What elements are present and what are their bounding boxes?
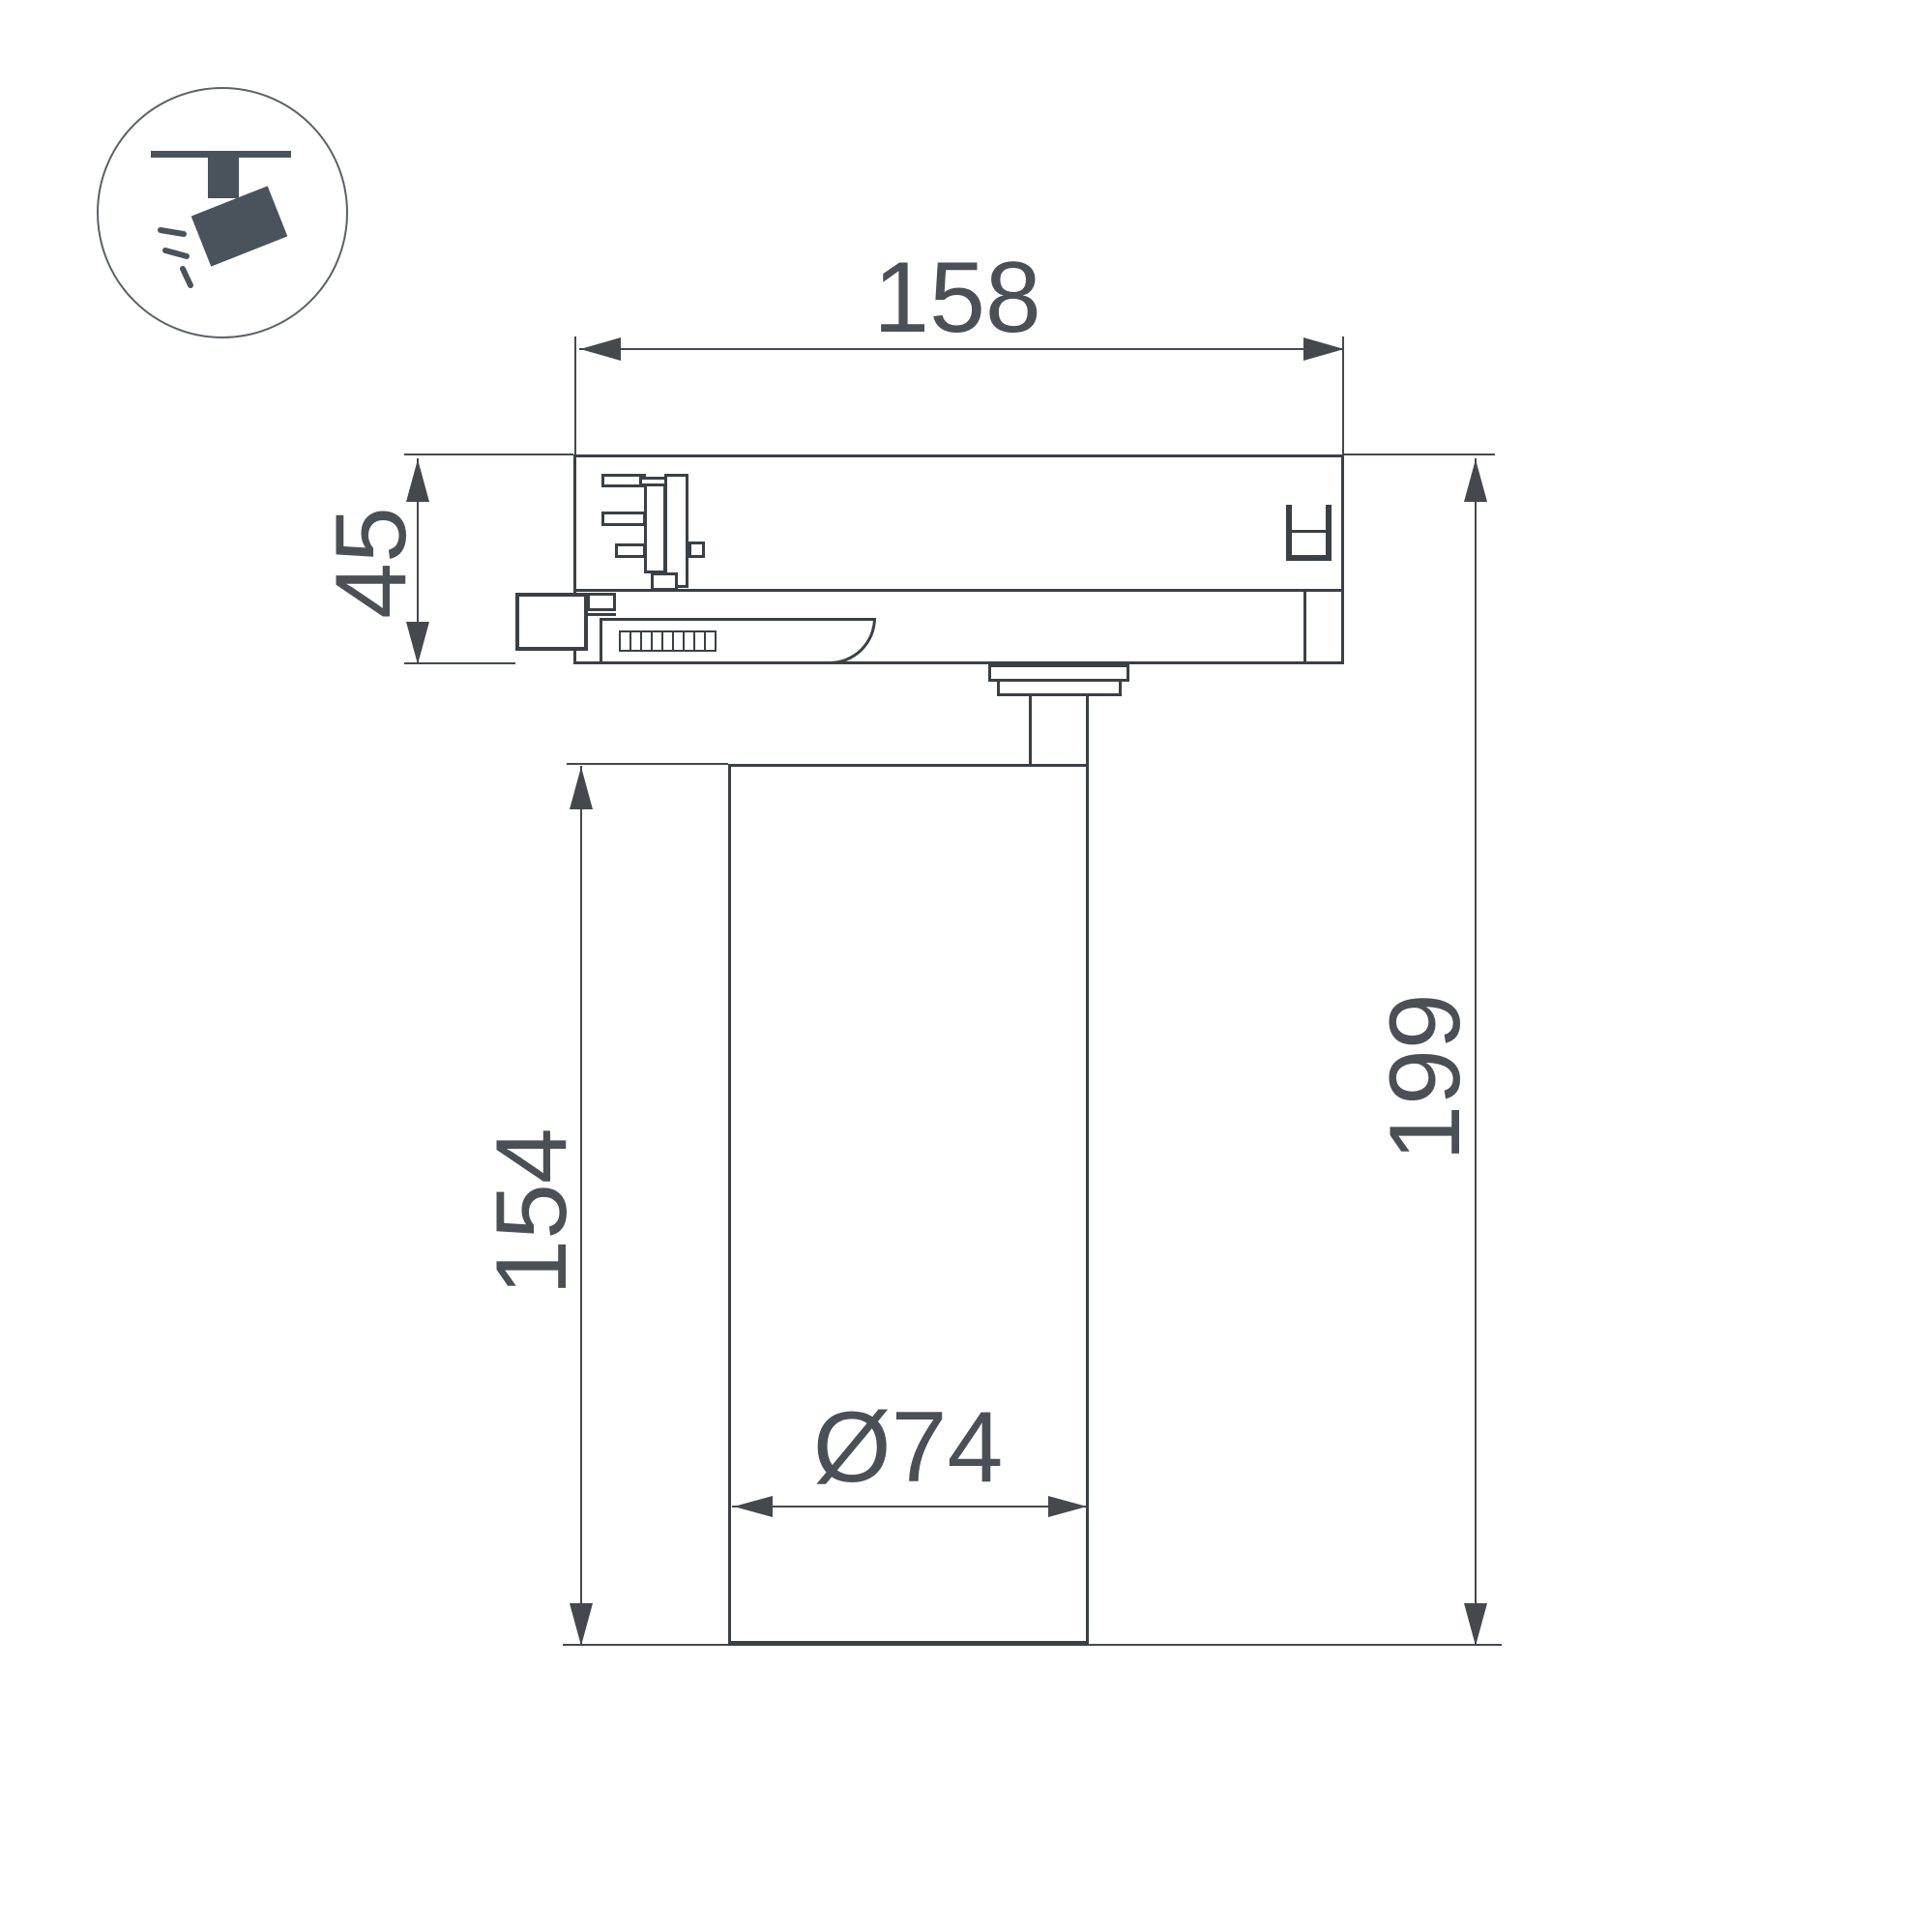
dim-74-label: Ø74 <box>763 1394 1053 1501</box>
dim-154-label: 154 <box>479 1067 585 1357</box>
connector-right-body <box>664 474 688 588</box>
connector-prong-middle <box>601 512 646 526</box>
mount-stem <box>1029 693 1089 767</box>
adapter-vent-grill <box>619 630 717 652</box>
adapter-latch-box <box>515 593 588 651</box>
adapter-lock-line <box>587 613 616 616</box>
dim-74-line <box>732 1506 1086 1508</box>
lamp-cylinder-body <box>728 764 1089 1646</box>
adapter-clip-inner-line <box>1291 530 1327 533</box>
dim-45-label: 45 <box>318 418 424 708</box>
icon-track-stem <box>208 153 239 198</box>
technical-drawing-canvas: 158 45 154 199 Ø74 <box>0 0 1932 1932</box>
adapter-lock-box <box>587 593 616 611</box>
dim-158-label: 158 <box>812 245 1102 351</box>
dim-45-ext-top <box>404 454 573 455</box>
dim-199-ext-top <box>1344 454 1495 455</box>
dim-154-arrow-down <box>570 1603 593 1649</box>
dim-158-arrow-right <box>1303 337 1347 361</box>
adapter-clip-u-shape <box>1286 505 1332 561</box>
vent-grill-stripes <box>621 632 715 650</box>
dim-154-arrow-up <box>570 764 593 809</box>
dim-199-label: 199 <box>1372 932 1478 1222</box>
adapter-main-body <box>573 454 1344 592</box>
dim-199-ext-bottom <box>1089 1644 1502 1646</box>
connector-right-tab <box>688 542 705 558</box>
adapter-strip-divider <box>1303 591 1306 662</box>
connector-prong-bottom <box>615 543 646 558</box>
dim-158-ext-left <box>574 337 576 454</box>
dim-199-arrow-up <box>1464 456 1487 502</box>
track-spotlight-icon <box>96 86 349 339</box>
dim-74-arrow-right <box>1048 1496 1090 1517</box>
connector-cap <box>639 477 667 486</box>
connector-foot <box>651 572 678 591</box>
connector-column <box>644 483 666 573</box>
dim-199-arrow-down <box>1464 1603 1487 1649</box>
dim-158-arrow-left <box>577 337 621 361</box>
